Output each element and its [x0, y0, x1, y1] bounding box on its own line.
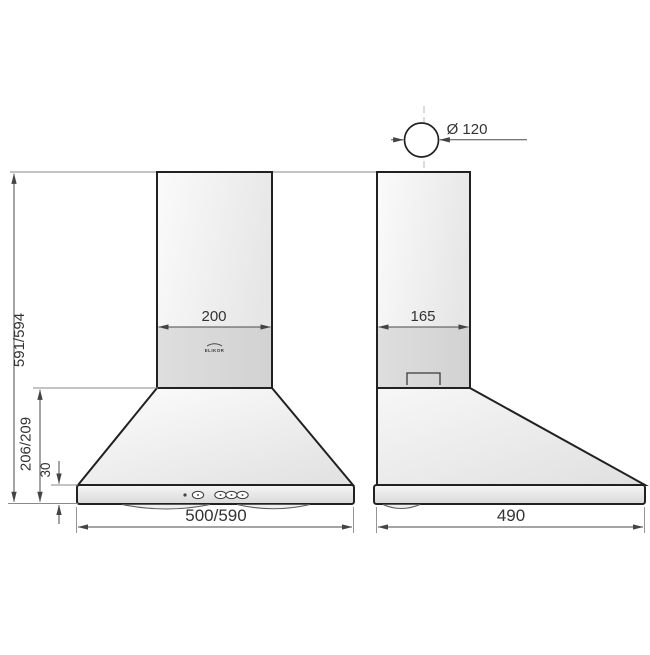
side-lamp-cover — [383, 505, 420, 509]
speed-1-dot-icon — [220, 494, 222, 496]
side-view: Ø 120 165 490 — [374, 106, 645, 533]
dimension-body-depth: 490 — [377, 506, 645, 533]
side-base — [374, 485, 645, 504]
dim-label-body-depth: 490 — [497, 506, 525, 525]
dim-label-chimney-width: 200 — [201, 308, 226, 325]
dim-label-lower-body-height: 206/209 — [18, 417, 35, 471]
drawing-canvas: 200 ELIKOR — [0, 0, 650, 650]
front-canopy — [78, 388, 353, 485]
dimension-lower-body-height: 206/209 — [18, 390, 41, 502]
control-panel — [183, 491, 248, 498]
dim-label-total-height: 591/594 — [11, 313, 28, 367]
dim-label-body-width: 500/590 — [185, 506, 246, 525]
speed-3-dot-icon — [242, 494, 244, 496]
duct-circle — [405, 123, 439, 157]
logo-text: ELIKOR — [205, 348, 225, 353]
dim-label-base-height: 30 — [38, 462, 53, 477]
indicator-light-icon — [183, 493, 186, 496]
front-view: 200 ELIKOR — [77, 172, 354, 509]
light-button-dot-icon — [197, 494, 199, 496]
dim-label-chimney-depth: 165 — [410, 308, 435, 325]
speed-2-dot-icon — [231, 494, 233, 496]
dimension-base-height: 30 — [38, 461, 59, 524]
side-chimney-lower-section — [378, 328, 469, 388]
lamp-cover-right — [237, 505, 310, 509]
front-chimney-lower-section — [158, 328, 271, 388]
side-canopy — [377, 388, 645, 485]
dim-label-duct-diameter: Ø 120 — [447, 121, 488, 138]
technical-drawing: 200 ELIKOR — [0, 0, 650, 650]
dimension-body-width: 500/590 — [77, 506, 354, 533]
